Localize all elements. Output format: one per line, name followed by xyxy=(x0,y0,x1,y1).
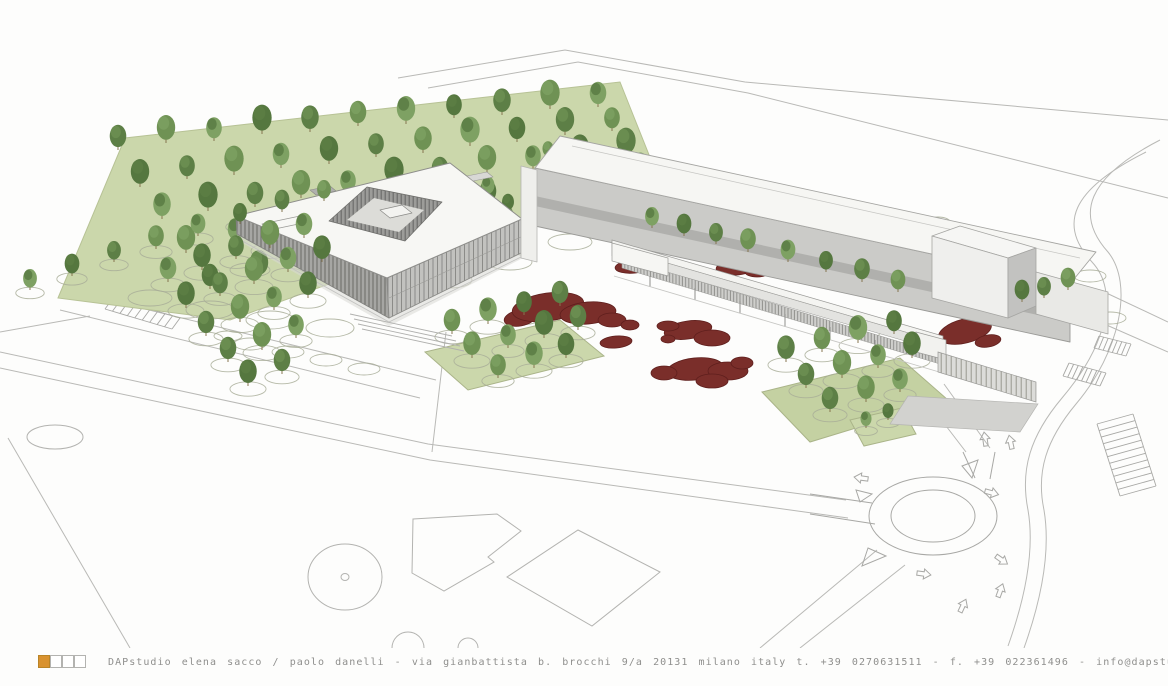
red-shrub-bed xyxy=(651,366,677,380)
tree-canopy-outline-west xyxy=(27,425,83,449)
logo-square xyxy=(74,655,86,668)
roundabout-outer-ring xyxy=(869,477,997,555)
tree-canopy-outline-large xyxy=(308,544,382,610)
tree-trunk-dot xyxy=(341,574,349,581)
red-shrub-bed xyxy=(600,335,633,350)
road-arrow xyxy=(916,568,931,580)
road-arrow xyxy=(979,431,991,446)
road-arrow xyxy=(1004,434,1017,450)
footer: DAPstudio elena sacco / paolo danelli - … xyxy=(0,648,1168,686)
logo-square xyxy=(62,655,74,668)
red-shrub-bed xyxy=(696,374,728,388)
tree xyxy=(288,314,304,338)
south-road xyxy=(760,550,905,648)
road-arrow xyxy=(984,486,1000,499)
studio-logo-squares-icon xyxy=(38,655,86,668)
right-building-end-wall xyxy=(521,166,537,262)
road-arrow xyxy=(853,472,868,484)
tree-canopy-outline xyxy=(306,319,354,337)
traffic-island-south xyxy=(862,548,886,566)
traffic-island-north xyxy=(962,460,978,478)
curved-road-east-edge-2 xyxy=(1024,140,1160,648)
red-shrub-bed xyxy=(657,321,679,331)
tree-canopy-outline xyxy=(348,363,380,375)
tree xyxy=(23,269,37,290)
logo-square xyxy=(50,655,62,668)
road-arrow xyxy=(993,582,1007,599)
roundabout-island xyxy=(891,490,975,542)
red-shrub-bed xyxy=(694,330,730,346)
road-arrow xyxy=(955,597,970,614)
logo-square-filled xyxy=(38,655,50,668)
studio-credits-line: DAPstudio elena sacco / paolo danelli - … xyxy=(108,657,1168,668)
diagonal-road-left xyxy=(8,438,130,648)
existing-site-outlines xyxy=(27,425,660,648)
presentation-page: DAPstudio elena sacco / paolo danelli - … xyxy=(0,0,1168,686)
traffic-island-west xyxy=(856,490,872,502)
existing-building-outline-diamond xyxy=(507,530,660,626)
red-shrub-bed xyxy=(661,335,675,343)
stalls-right-2 xyxy=(1094,336,1131,356)
partial-circles-bottom xyxy=(392,632,478,648)
stalls-ne-roundabout xyxy=(1097,414,1156,496)
red-shrub-bed xyxy=(731,357,753,369)
road-arrow xyxy=(993,552,1010,568)
red-shrub-bed xyxy=(621,320,639,330)
existing-building-outline-l xyxy=(412,514,521,591)
tree-canopy-outline xyxy=(310,354,342,366)
site-rendering xyxy=(0,0,1168,648)
roundabout xyxy=(810,452,997,566)
retaining-wall-hatched xyxy=(938,352,1036,402)
roundabout-entries xyxy=(810,452,995,524)
